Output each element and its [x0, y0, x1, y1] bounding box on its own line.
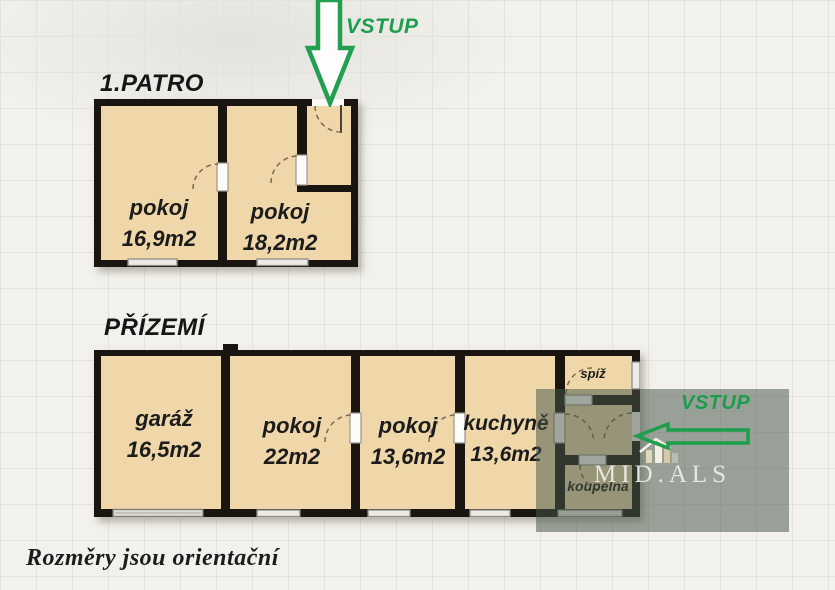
- room-label-pokoj-182: pokoj 18,2m2: [228, 196, 332, 258]
- entrance-label-right: VSTUP: [681, 392, 750, 415]
- room-label-garaz: garáž 16,5m2: [103, 403, 225, 465]
- door-hall-pokoj182: [296, 155, 307, 185]
- window-pokoj22: [257, 510, 300, 517]
- chimney-mark: [223, 344, 238, 352]
- window-spiz: [632, 362, 640, 389]
- floor-title-first-floor: 1.PATRO: [100, 70, 204, 98]
- room-name: garáž: [103, 403, 225, 434]
- room-area: 16,5m2: [103, 434, 225, 465]
- window-kuchyne: [470, 510, 510, 517]
- room-area: 22m2: [232, 441, 352, 472]
- room-name: pokoj: [228, 196, 332, 227]
- entry-hall-first-floor: [307, 106, 351, 185]
- floor-title-ground-floor: PŘÍZEMÍ: [104, 314, 205, 342]
- door-pokoj169-pokoj182: [217, 163, 228, 191]
- disclaimer-note: Rozměry jsou orientační: [26, 545, 279, 572]
- room-label-pokoj-22: pokoj 22m2: [232, 410, 352, 472]
- watermark-overlay: MID.ALS: [536, 389, 789, 532]
- window-pokoj182: [257, 259, 308, 266]
- room-name: spíž: [562, 367, 624, 381]
- room-area: 18,2m2: [228, 227, 332, 258]
- room-label-spiz: spíž: [562, 367, 624, 381]
- room-label-pokoj-136: pokoj 13,6m2: [360, 410, 456, 472]
- entrance-arrow-left-icon: [628, 419, 753, 451]
- watermark-brand: MID.ALS: [594, 461, 731, 489]
- room-area: 13,6m2: [360, 441, 456, 472]
- entrance-label-top: VSTUP: [346, 15, 419, 39]
- room-name: pokoj: [232, 410, 352, 441]
- floor-plan-canvas: VSTUP 1.PATRO pokoj 16,9m2 pokoj 18,2m2 …: [0, 0, 835, 590]
- room-label-pokoj-169: pokoj 16,9m2: [100, 192, 218, 254]
- room-name: pokoj: [100, 192, 218, 223]
- window-pokoj169: [128, 259, 177, 266]
- window-pokoj136: [368, 510, 410, 517]
- room-area: 16,9m2: [100, 223, 218, 254]
- room-name: pokoj: [360, 410, 456, 441]
